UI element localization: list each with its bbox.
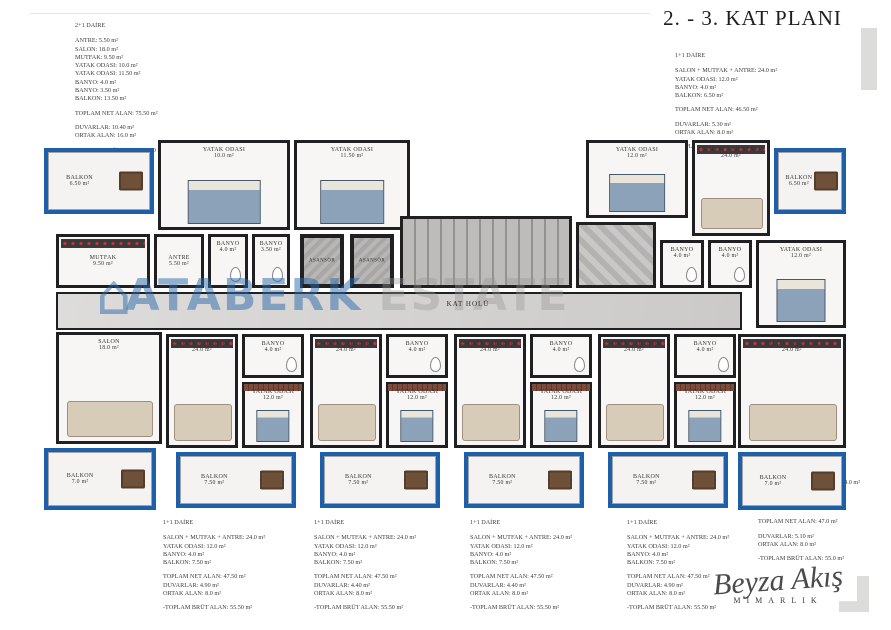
- info-line: YATAK ODASI: 11.50 m²: [75, 70, 225, 78]
- info-line: SALON + MUTFAK + ANTRE: 24.0 m²: [627, 534, 772, 542]
- room-area: 4.0 m²: [533, 347, 589, 353]
- info-line: BALKON: 7.50 m²: [314, 559, 459, 567]
- room-area: 24.0 m²: [741, 347, 843, 353]
- room-label: SALON + MUTFAK24.0 m²: [601, 341, 667, 353]
- table-icon: [811, 472, 835, 491]
- room-area: 4.0 m²: [663, 253, 701, 259]
- hall: KAT HOLÜ: [56, 292, 742, 330]
- room-area: 12.0 m²: [759, 253, 843, 259]
- sofa-icon: [606, 404, 663, 441]
- unit3-balcony: BALKON7.50 m²: [464, 452, 584, 508]
- banyo-40-left: BANYO4.0 m²: [208, 234, 248, 288]
- bed-icon: [188, 180, 261, 224]
- room-area: 4.0 m²: [677, 347, 733, 353]
- unit2-bedroom: YATAK ODASI12.0 m²: [386, 382, 448, 448]
- salon-mutfak-top-right: SALON + MUTFAK24.0 m²: [692, 140, 770, 236]
- info-line: SALON + MUTFAK + ANTRE: 24.0 m²: [675, 67, 850, 75]
- info-line: ORTAK ALAN: 8.0 m²: [314, 590, 459, 598]
- table-icon: [260, 471, 284, 490]
- room-label: BALKON7.50 m²: [327, 474, 390, 486]
- room-area: 12.0 m²: [677, 395, 733, 401]
- room-area: 5.50 m²: [157, 261, 201, 267]
- room-label: BALKON6.50 m²: [781, 175, 817, 187]
- bedroom-12-top-right: YATAK ODASI12.0 m²: [586, 140, 688, 218]
- room-label: ASANSÖR: [354, 259, 390, 264]
- table-icon: [692, 471, 716, 490]
- page-title: 2. - 3. KAT PLANI: [640, 6, 865, 31]
- info-line: YATAK ODASI: 12.0 m²: [627, 543, 772, 551]
- info-line: ORTAK ALAN: 8.0 m²: [675, 129, 850, 137]
- unit4-banyo: BANYO4.0 m²: [674, 334, 736, 378]
- wc-icon: [574, 357, 585, 372]
- room-area: 12.0 m²: [533, 395, 589, 401]
- room-area: 6.50 m²: [51, 181, 108, 187]
- unit4-balcony: BALKON7.50 m²: [608, 452, 728, 508]
- elevator-1: ASANSÖR: [300, 234, 344, 288]
- room-label: BALKON7.50 m²: [471, 474, 534, 486]
- info-line: BALKON: 13.50 m²: [75, 95, 225, 103]
- unit3-banyo: BANYO4.0 m²: [530, 334, 592, 378]
- balcony-2plus1-top: BALKON6.50 m²: [44, 148, 154, 214]
- unit1-banyo: BANYO4.0 m²: [242, 334, 304, 378]
- room-area: 12.0 m²: [389, 395, 445, 401]
- room-label: BANYO4.0 m²: [677, 341, 733, 353]
- sofa-icon: [318, 404, 375, 441]
- bed-icon: [320, 180, 384, 224]
- bed-icon: [688, 410, 721, 442]
- bedroom-12-right: YATAK ODASI12.0 m²: [756, 240, 846, 328]
- info-block-unit2: 1+1 DAİRESALON + MUTFAK + ANTRE: 24.0 m²…: [314, 519, 459, 613]
- room-area: 10.0 m²: [161, 153, 287, 159]
- sofa-icon: [67, 401, 153, 437]
- room-area: 4.0 m²: [711, 253, 749, 259]
- room-area: 4.0 m²: [389, 347, 445, 353]
- sofa-icon: [174, 404, 231, 441]
- balcony-70-left: BALKON7.0 m²: [44, 448, 156, 510]
- architect-logo: Beyza Akış MİMARLIK: [693, 566, 863, 605]
- info-block-title: 1+1 DAİRE: [163, 519, 308, 527]
- unit2-banyo: BANYO4.0 m²: [386, 334, 448, 378]
- room-label: ANTRE5.50 m²: [157, 255, 201, 267]
- room-area: 4.0 m²: [245, 347, 301, 353]
- room-label: YATAK ODASI12.0 m²: [677, 389, 733, 401]
- room-area: 7.50 m²: [471, 480, 534, 486]
- table-icon: [548, 471, 572, 490]
- room-label: YATAK ODASI12.0 m²: [245, 389, 301, 401]
- info-line: YATAK ODASI: 10.0 m²: [75, 62, 225, 70]
- table-icon: [814, 172, 838, 191]
- info-block-2plus1: 2+1 DAİREANTRE: 5.50 m²SALON: 18.0 m²MUT…: [75, 22, 225, 155]
- sofa-icon: [701, 198, 763, 229]
- table-icon: [119, 172, 143, 191]
- bed-icon: [400, 410, 433, 442]
- hall-label: KAT HOLÜ: [408, 300, 528, 308]
- room-label: BANYO4.0 m²: [711, 247, 749, 259]
- info-line: YATAK ODASI: 12.0 m²: [163, 543, 308, 551]
- info-line: BALKON: 7.50 m²: [470, 559, 615, 567]
- unit4-salon-mutfak: SALON + MUTFAK24.0 m²: [598, 334, 670, 448]
- info-line: BALKON: 7.50 m²: [163, 559, 308, 567]
- room-label: YATAK ODASI12.0 m²: [389, 389, 445, 401]
- info-block-unit1: 1+1 DAİRESALON + MUTFAK + ANTRE: 24.0 m²…: [163, 519, 308, 613]
- info-line: TOPLAM NET ALAN: 75.50 m²: [75, 110, 225, 118]
- room-label: YATAK ODASI10.0 m²: [161, 147, 287, 159]
- sofa-icon: [749, 404, 837, 441]
- staircase: [400, 216, 572, 288]
- info-line: SALON + MUTFAK + ANTRE: 24.0 m²: [163, 534, 308, 542]
- wc-icon: [430, 357, 441, 372]
- unit1-bedroom: YATAK ODASI12.0 m²: [242, 382, 304, 448]
- room-area: 7.50 m²: [615, 480, 678, 486]
- banyo-350: BANYO3.50 m²: [252, 234, 290, 288]
- room-area: 7.50 m²: [327, 480, 390, 486]
- top-divider: [30, 13, 650, 14]
- info-line: TOPLAM NET ALAN: 47.50 m²: [163, 573, 308, 581]
- info-block-unit3: 1+1 DAİRESALON + MUTFAK + ANTRE: 24.0 m²…: [470, 519, 615, 613]
- room-label: YATAK ODASI12.0 m²: [759, 247, 843, 259]
- unit3-salon-mutfak: SALON + MUTFAK24.0 m²: [454, 334, 526, 448]
- info-block-title: 1+1 DAİRE: [675, 52, 850, 60]
- bed-icon: [776, 279, 825, 322]
- info-block-title: 2+1 DAİRE: [75, 22, 225, 30]
- unit3-bedroom: YATAK ODASI12.0 m²: [530, 382, 592, 448]
- info-line: DUVARLAR: 5.10 m²: [758, 533, 888, 541]
- info-line: SALON: 18.0 m²: [75, 46, 225, 54]
- room-area: 11.50 m²: [297, 153, 407, 159]
- info-line: TOPLAM NET ALAN: 47.50 m²: [470, 573, 615, 581]
- salon-18: SALON18.0 m²: [56, 332, 162, 444]
- unit1-balcony: BALKON7.50 m²: [176, 452, 296, 508]
- room-label: ASANSÖR: [304, 259, 340, 264]
- room-label: SALON + MUTFAK24.0 m²: [741, 341, 843, 353]
- info-line: -TOPLAM BRÜT ALAN: 55.50 m²: [627, 604, 772, 612]
- unit1-salon-mutfak: SALON + MUTFAK24.0 m²: [166, 334, 238, 448]
- room-area: 24.0 m²: [457, 347, 523, 353]
- room-label: MUTFAK9.50 m²: [59, 255, 147, 267]
- info-line: -TOPLAM BRÜT ALAN: 55.50 m²: [163, 604, 308, 612]
- table-icon: [404, 471, 428, 490]
- room-label: BANYO4.0 m²: [389, 341, 445, 353]
- room-label: YATAK ODASI11.50 m²: [297, 147, 407, 159]
- room-label: SALON + MUTFAK24.0 m²: [169, 341, 235, 353]
- room-area: 24.0 m²: [169, 347, 235, 353]
- room-area: 12.0 m²: [245, 395, 301, 401]
- unit2-balcony: BALKON7.50 m²: [320, 452, 440, 508]
- info-block-1plus1-top-right: 1+1 DAİRESALON + MUTFAK + ANTRE: 24.0 m²…: [675, 52, 850, 152]
- salon-mutfak-right: SALON + MUTFAK24.0 m²: [738, 334, 846, 448]
- info-line: TOPLAM NET ALAN: 47.50 m²: [314, 573, 459, 581]
- balcony-70-right: BALKON7.0 m²: [738, 452, 846, 510]
- kitchen-950: MUTFAK9.50 m²: [56, 234, 150, 288]
- bedroom-1150: YATAK ODASI11.50 m²: [294, 140, 410, 230]
- info-block-title: 1+1 DAİRE: [627, 519, 772, 527]
- room-area: 7.50 m²: [183, 480, 246, 486]
- bedroom-10: YATAK ODASI10.0 m²: [158, 140, 290, 230]
- room-label: SALON + MUTFAK24.0 m²: [313, 341, 379, 353]
- wc-icon: [286, 357, 297, 372]
- room-area: 3.50 m²: [255, 247, 287, 253]
- room-label: SALON + MUTFAK24.0 m²: [457, 341, 523, 353]
- room-label: YATAK ODASI12.0 m²: [589, 147, 685, 159]
- room-label: YATAK ODASI12.0 m²: [533, 389, 589, 401]
- info-line: ORTAK ALAN: 8.0 m²: [758, 541, 888, 549]
- room-label: BALKON7.50 m²: [615, 474, 678, 486]
- info-line: BANYO: 4.0 m²: [314, 551, 459, 559]
- info-block-title: 1+1 DAİRE: [470, 519, 615, 527]
- info-line: MUTFAK: 9.50 m²: [75, 54, 225, 62]
- room-label: SALON + MUTFAK24.0 m²: [695, 147, 767, 159]
- room-label: BALKON6.50 m²: [51, 175, 108, 187]
- shaft: [576, 222, 656, 288]
- room-label: BANYO4.0 m²: [245, 341, 301, 353]
- unit2-salon-mutfak: SALON + MUTFAK24.0 m²: [310, 334, 382, 448]
- unit4-bedroom: YATAK ODASI12.0 m²: [674, 382, 736, 448]
- info-line: BANYO: 4.0 m²: [675, 84, 850, 92]
- wc-icon: [718, 357, 729, 372]
- antre-550: ANTRE5.50 m²: [154, 234, 204, 288]
- room-label: SALON18.0 m²: [59, 339, 159, 351]
- wc-icon: [734, 267, 745, 282]
- wc-icon: [272, 267, 283, 282]
- banyo-40-right-2: BANYO4.0 m²: [708, 240, 752, 288]
- room-area: 7.0 m²: [51, 479, 109, 485]
- info-line: SALON + MUTFAK + ANTRE: 24.0 m²: [314, 534, 459, 542]
- info-line: YATAK ODASI: 12.0 m²: [675, 76, 850, 84]
- room-label: BALKON7.50 m²: [183, 474, 246, 486]
- info-line: DUVARLAR: 4.40 m²: [470, 582, 615, 590]
- info-line: YATAK ODASI: 12.0 m²: [314, 543, 459, 551]
- info-line: TOPLAM NET ALAN: 46.50 m²: [675, 106, 850, 114]
- wc-icon: [230, 267, 241, 282]
- info-line: BANYO: 4.0 m²: [627, 551, 772, 559]
- room-area: 12.0 m²: [589, 153, 685, 159]
- info-line: -TOPLAM BRÜT ALAN: 55.50 m²: [314, 604, 459, 612]
- room-area: 4.0 m²: [211, 247, 245, 253]
- room-area: 6.50 m²: [781, 181, 817, 187]
- info-line: ORTAK ALAN: 8.0 m²: [470, 590, 615, 598]
- kitchen-hob-icon: [61, 239, 145, 248]
- info-line: DUVARLAR: 4.40 m²: [314, 582, 459, 590]
- info-line: DUVARLAR: 4.90 m²: [163, 582, 308, 590]
- info-block-title: 1+1 DAİRE: [314, 519, 459, 527]
- info-line: DUVARLAR: 10.40 m²: [75, 124, 225, 132]
- room-label: BALKON7.0 m²: [745, 475, 801, 487]
- elevator-2: ASANSÖR: [350, 234, 394, 288]
- bed-icon: [609, 174, 665, 212]
- wc-icon: [686, 267, 697, 282]
- room-label: BANYO4.0 m²: [663, 247, 701, 259]
- info-line: SALON + MUTFAK + ANTRE: 24.0 m²: [470, 534, 615, 542]
- info-line: ORTAK ALAN: 8.0 m²: [163, 590, 308, 598]
- bed-icon: [544, 410, 577, 442]
- room-area: 18.0 m²: [59, 345, 159, 351]
- floor-plan: ⌂ ATABERK ESTATE KAT HOLÜ BALKON6.50 m²Y…: [38, 138, 853, 520]
- room-label: BANYO4.0 m²: [211, 241, 245, 253]
- bed-icon: [256, 410, 289, 442]
- info-line: ANTRE: 5.50 m²: [75, 37, 225, 45]
- corner-bracket-top-right: [861, 28, 877, 90]
- info-line: DUVARLAR: 5.30 m²: [675, 121, 850, 129]
- info-line: -TOPLAM BRÜT ALAN: 55.50 m²: [470, 604, 615, 612]
- balcony-650-right: BALKON6.50 m²: [774, 148, 846, 214]
- info-line: BANYO: 4.0 m²: [75, 79, 225, 87]
- info-line: BANYO: 4.0 m²: [470, 551, 615, 559]
- room-label: BANYO4.0 m²: [533, 341, 589, 353]
- room-area: 24.0 m²: [601, 347, 667, 353]
- room-label: BALKON7.0 m²: [51, 473, 109, 485]
- info-line: TOPLAM NET ALAN: 47.0 m²: [758, 518, 888, 526]
- sofa-icon: [462, 404, 519, 441]
- room-area: 24.0 m²: [313, 347, 379, 353]
- info-line: BANYO: 4.0 m²: [163, 551, 308, 559]
- banyo-40-right-1: BANYO4.0 m²: [660, 240, 704, 288]
- room-area: 7.0 m²: [745, 481, 801, 487]
- room-area: 9.50 m²: [59, 261, 147, 267]
- floor-plan-sheet: 2. - 3. KAT PLANI 2+1 DAİREANTRE: 5.50 m…: [0, 0, 891, 630]
- info-line: YATAK ODASI: 12.0 m²: [470, 543, 615, 551]
- room-label: BANYO3.50 m²: [255, 241, 287, 253]
- table-icon: [121, 470, 145, 489]
- info-line: BANYO: 3.50 m²: [75, 87, 225, 95]
- room-area: 24.0 m²: [695, 153, 767, 159]
- info-line: BALKON: 6.50 m²: [675, 92, 850, 100]
